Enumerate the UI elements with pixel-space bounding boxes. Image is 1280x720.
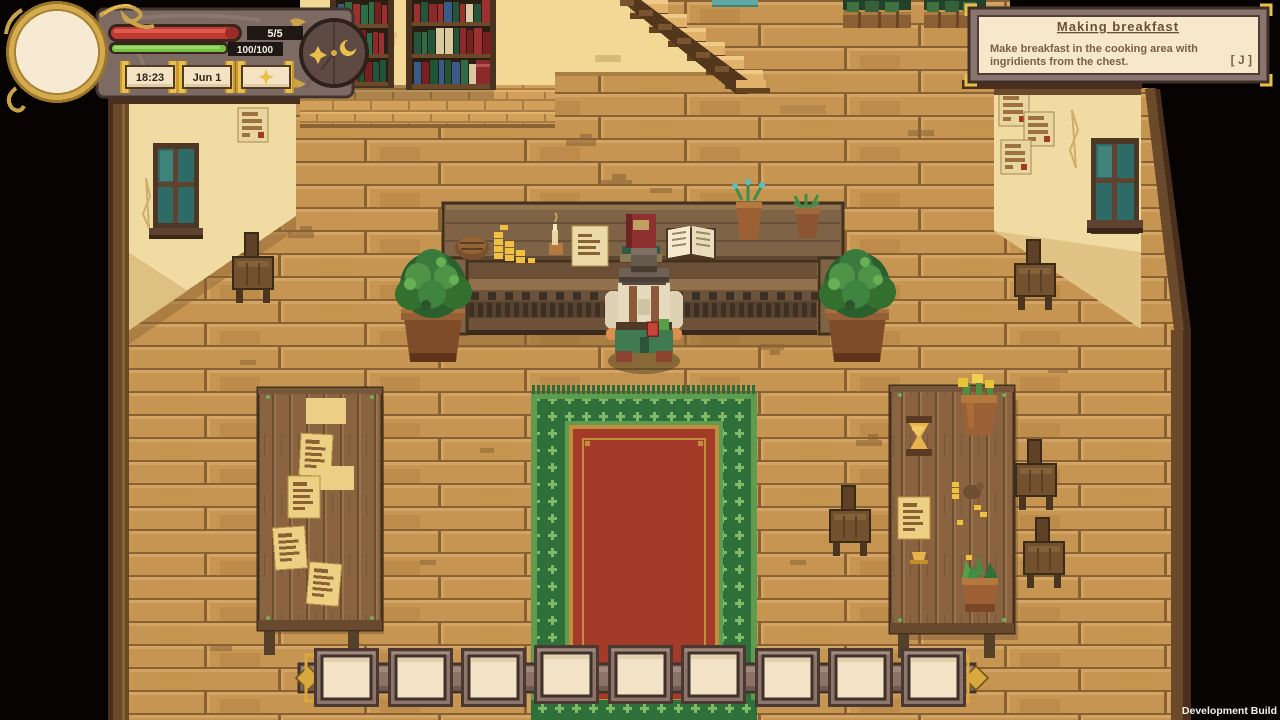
svg-text:Jun 1: Jun 1 — [193, 72, 222, 84]
svg-text:Development Build: Development Build — [1182, 705, 1277, 717]
svg-text:100/100: 100/100 — [237, 45, 274, 56]
svg-text:18:23: 18:23 — [136, 72, 164, 84]
svg-text:Make breakfast in the cooking: Make breakfast in the cooking area with — [990, 43, 1198, 55]
svg-text:ingridients from the chest.: ingridients from the chest. — [990, 56, 1128, 68]
svg-text:Making breakfast: Making breakfast — [1057, 19, 1179, 34]
svg-text:[ J ]: [ J ] — [1231, 53, 1252, 67]
svg-text:5/5: 5/5 — [267, 28, 282, 40]
